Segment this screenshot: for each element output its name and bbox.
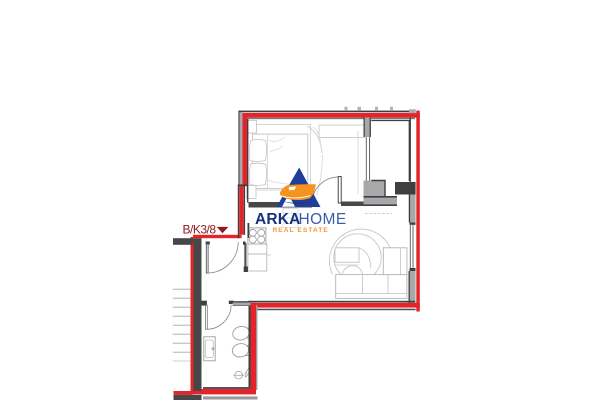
svg-text:ARKA: ARKA <box>255 211 301 228</box>
svg-text:REAL ESTATE: REAL ESTATE <box>273 227 329 234</box>
svg-text:HOME: HOME <box>299 211 347 228</box>
svg-text:B/K3/8: B/K3/8 <box>183 223 217 237</box>
